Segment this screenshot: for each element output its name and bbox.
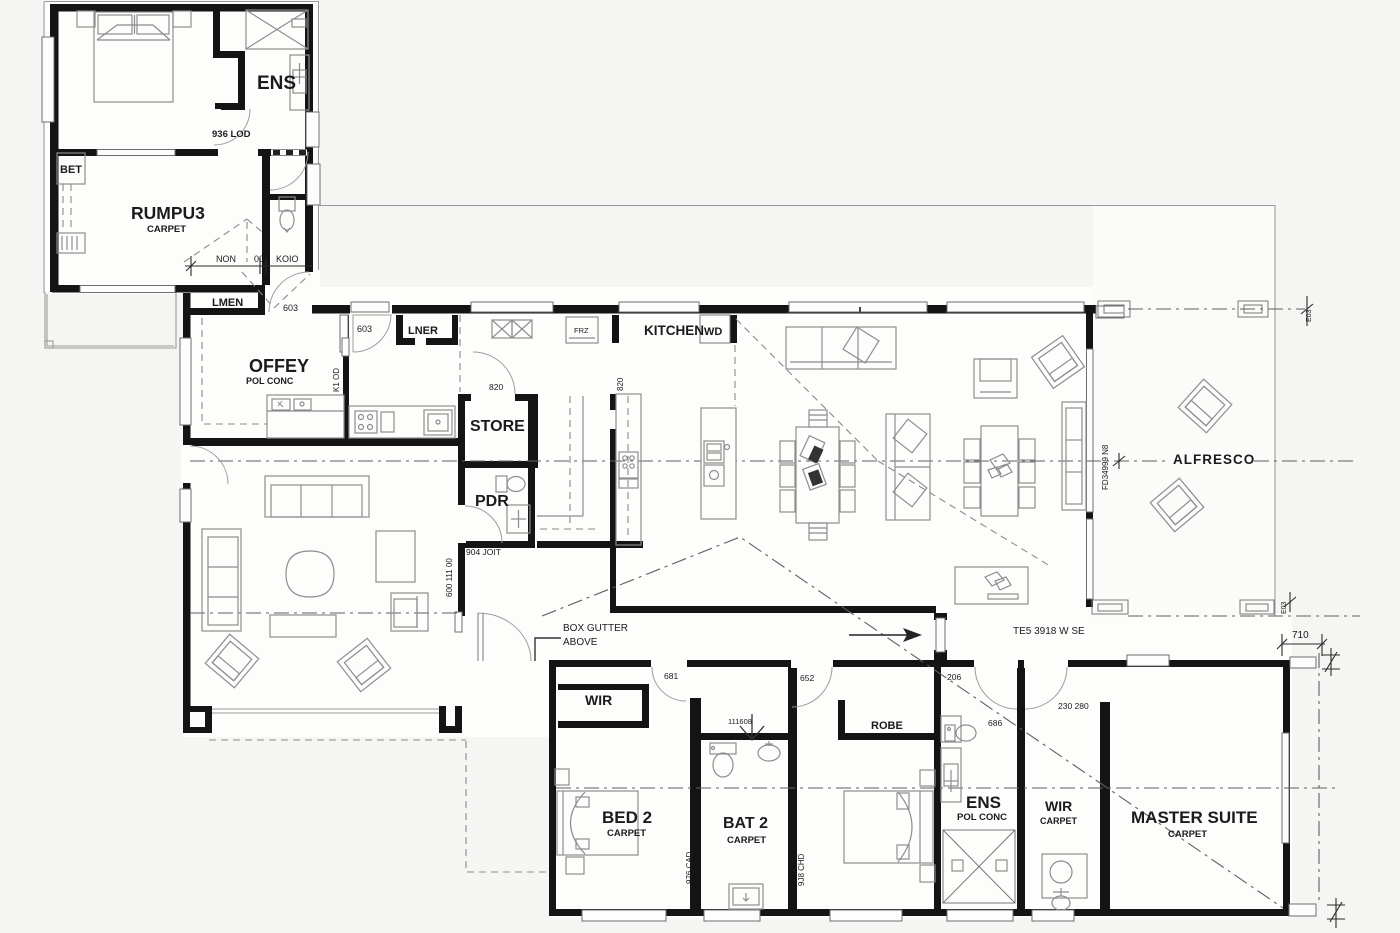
svg-text:LNER: LNER (408, 325, 438, 337)
svg-text:NON: NON (216, 254, 236, 264)
svg-text:820: 820 (616, 377, 625, 391)
svg-text:230 280: 230 280 (1058, 701, 1089, 711)
svg-text:710: 710 (1292, 630, 1309, 641)
svg-text:681: 681 (664, 671, 678, 681)
svg-text:CARPET: CARPET (607, 828, 646, 839)
svg-text:206: 206 (947, 672, 961, 682)
svg-text:820: 820 (489, 382, 503, 392)
svg-text:ROBE: ROBE (871, 720, 903, 732)
svg-text:BAT 2: BAT 2 (723, 815, 768, 832)
svg-text:603: 603 (357, 324, 372, 334)
svg-text:904 JOIT: 904 JOIT (466, 547, 501, 557)
svg-text:600 111 00: 600 111 00 (445, 558, 454, 597)
svg-text:976 CAD: 976 CAD (685, 851, 694, 884)
svg-text:936 LOD: 936 LOD (212, 129, 251, 140)
svg-text:MASTER SUITE: MASTER SUITE (1131, 808, 1258, 827)
svg-text:WIR: WIR (1045, 798, 1072, 814)
svg-text:9J8 CHD: 9J8 CHD (797, 853, 806, 886)
svg-text:FRZ: FRZ (574, 326, 589, 335)
svg-text:BET: BET (60, 164, 82, 176)
svg-text:WIR: WIR (585, 692, 612, 708)
svg-text:ABOVE: ABOVE (563, 637, 598, 648)
svg-text:111608: 111608 (728, 717, 752, 726)
svg-text:RUMPU3: RUMPU3 (131, 203, 205, 223)
svg-text:E03: E03 (1306, 309, 1313, 322)
svg-text:FD34999 N8: FD34999 N8 (1101, 444, 1110, 490)
svg-text:00: 00 (254, 254, 264, 264)
svg-text:ENS: ENS (257, 73, 296, 94)
svg-text:OFFEY: OFFEY (249, 356, 309, 376)
svg-text:652: 652 (800, 673, 814, 683)
svg-text:KOIO: KOIO (276, 254, 299, 264)
svg-text:LMEN: LMEN (212, 297, 243, 309)
svg-text:ALFRESCO: ALFRESCO (1173, 452, 1255, 467)
svg-text:BOX GUTTER: BOX GUTTER (563, 623, 628, 634)
svg-text:CARPET: CARPET (147, 224, 186, 235)
svg-text:STORE: STORE (470, 418, 525, 435)
svg-text:686: 686 (988, 718, 1002, 728)
svg-text:603: 603 (283, 303, 298, 313)
svg-text:KITCHEN: KITCHEN (644, 323, 704, 338)
svg-text:PDR: PDR (475, 493, 509, 510)
svg-text:POL CONC: POL CONC (957, 812, 1007, 823)
svg-text:E03: E03 (1281, 601, 1288, 614)
svg-text:CARPET: CARPET (727, 835, 766, 846)
svg-text:CARPET: CARPET (1168, 829, 1207, 840)
svg-text:ENS: ENS (966, 793, 1001, 812)
svg-text:BED 2: BED 2 (602, 808, 652, 827)
svg-text:K1 OD: K1 OD (332, 368, 341, 392)
svg-text:POL CONC: POL CONC (246, 376, 294, 386)
svg-text:WD: WD (704, 326, 722, 338)
svg-text:TE5 3918 W SE: TE5 3918 W SE (1013, 626, 1085, 637)
svg-text:CARPET: CARPET (1040, 816, 1078, 826)
